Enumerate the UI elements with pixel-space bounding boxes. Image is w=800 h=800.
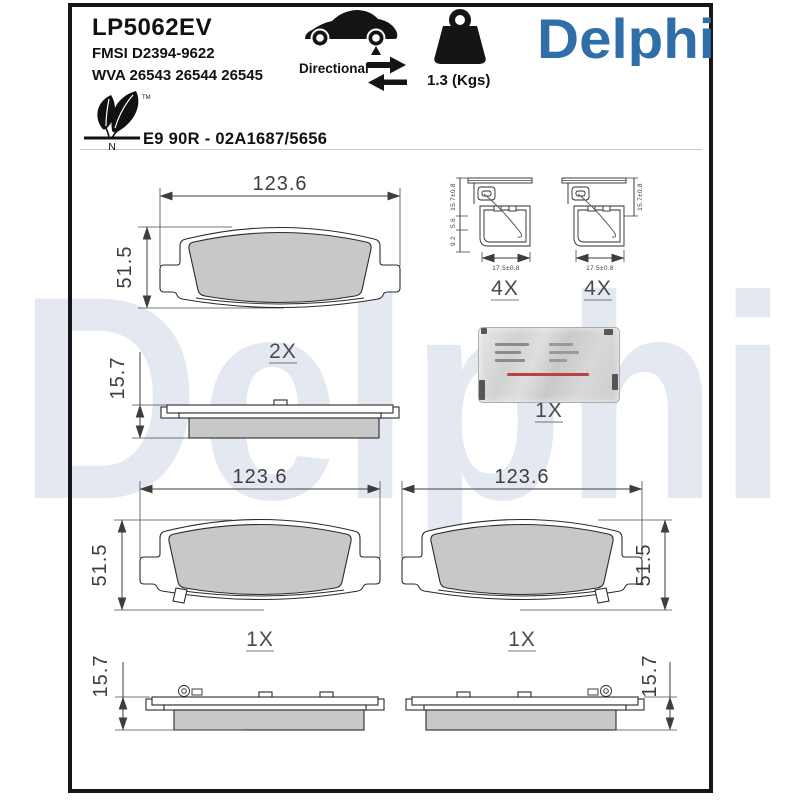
brand-logo: Delphi xyxy=(535,6,720,66)
sachet-text-line xyxy=(495,351,521,354)
wva-reference: WVA 26543 26544 26545 xyxy=(92,67,263,84)
sachet-seal-mark xyxy=(612,374,618,390)
sachet-seal-mark xyxy=(604,329,613,335)
eco-leaf-icon: N TM xyxy=(82,90,152,154)
sachet-warning-line xyxy=(507,373,589,376)
trademark-symbol: TM xyxy=(142,95,151,101)
sachet-text-line xyxy=(495,343,529,346)
directional-arrows-icon xyxy=(366,55,408,92)
car-icon xyxy=(302,8,398,62)
part-number: LP5062EV xyxy=(92,14,212,42)
watermark-text: Delphi xyxy=(18,236,788,561)
eco-letter: N xyxy=(108,141,116,153)
sachet-text-line xyxy=(549,359,567,362)
sachet-text-line xyxy=(549,343,573,346)
grease-sachet xyxy=(478,327,620,403)
ece-approval-number: E9 90R - 02A1687/5656 xyxy=(143,130,327,149)
weight-icon xyxy=(429,6,491,68)
brand-logo-text: Delphi xyxy=(537,7,715,66)
fmsi-reference: FMSI D2394-9622 xyxy=(92,45,215,62)
sachet-seal-mark xyxy=(479,380,485,400)
sachet-text-line xyxy=(495,359,525,362)
directional-label: Directional xyxy=(299,61,369,76)
sachet-text-line xyxy=(549,351,579,354)
header-divider xyxy=(80,149,702,150)
position-marker-triangle xyxy=(371,46,381,55)
weight-value: 1.3 (Kgs) xyxy=(427,72,490,89)
sachet-seal-mark xyxy=(481,328,487,334)
